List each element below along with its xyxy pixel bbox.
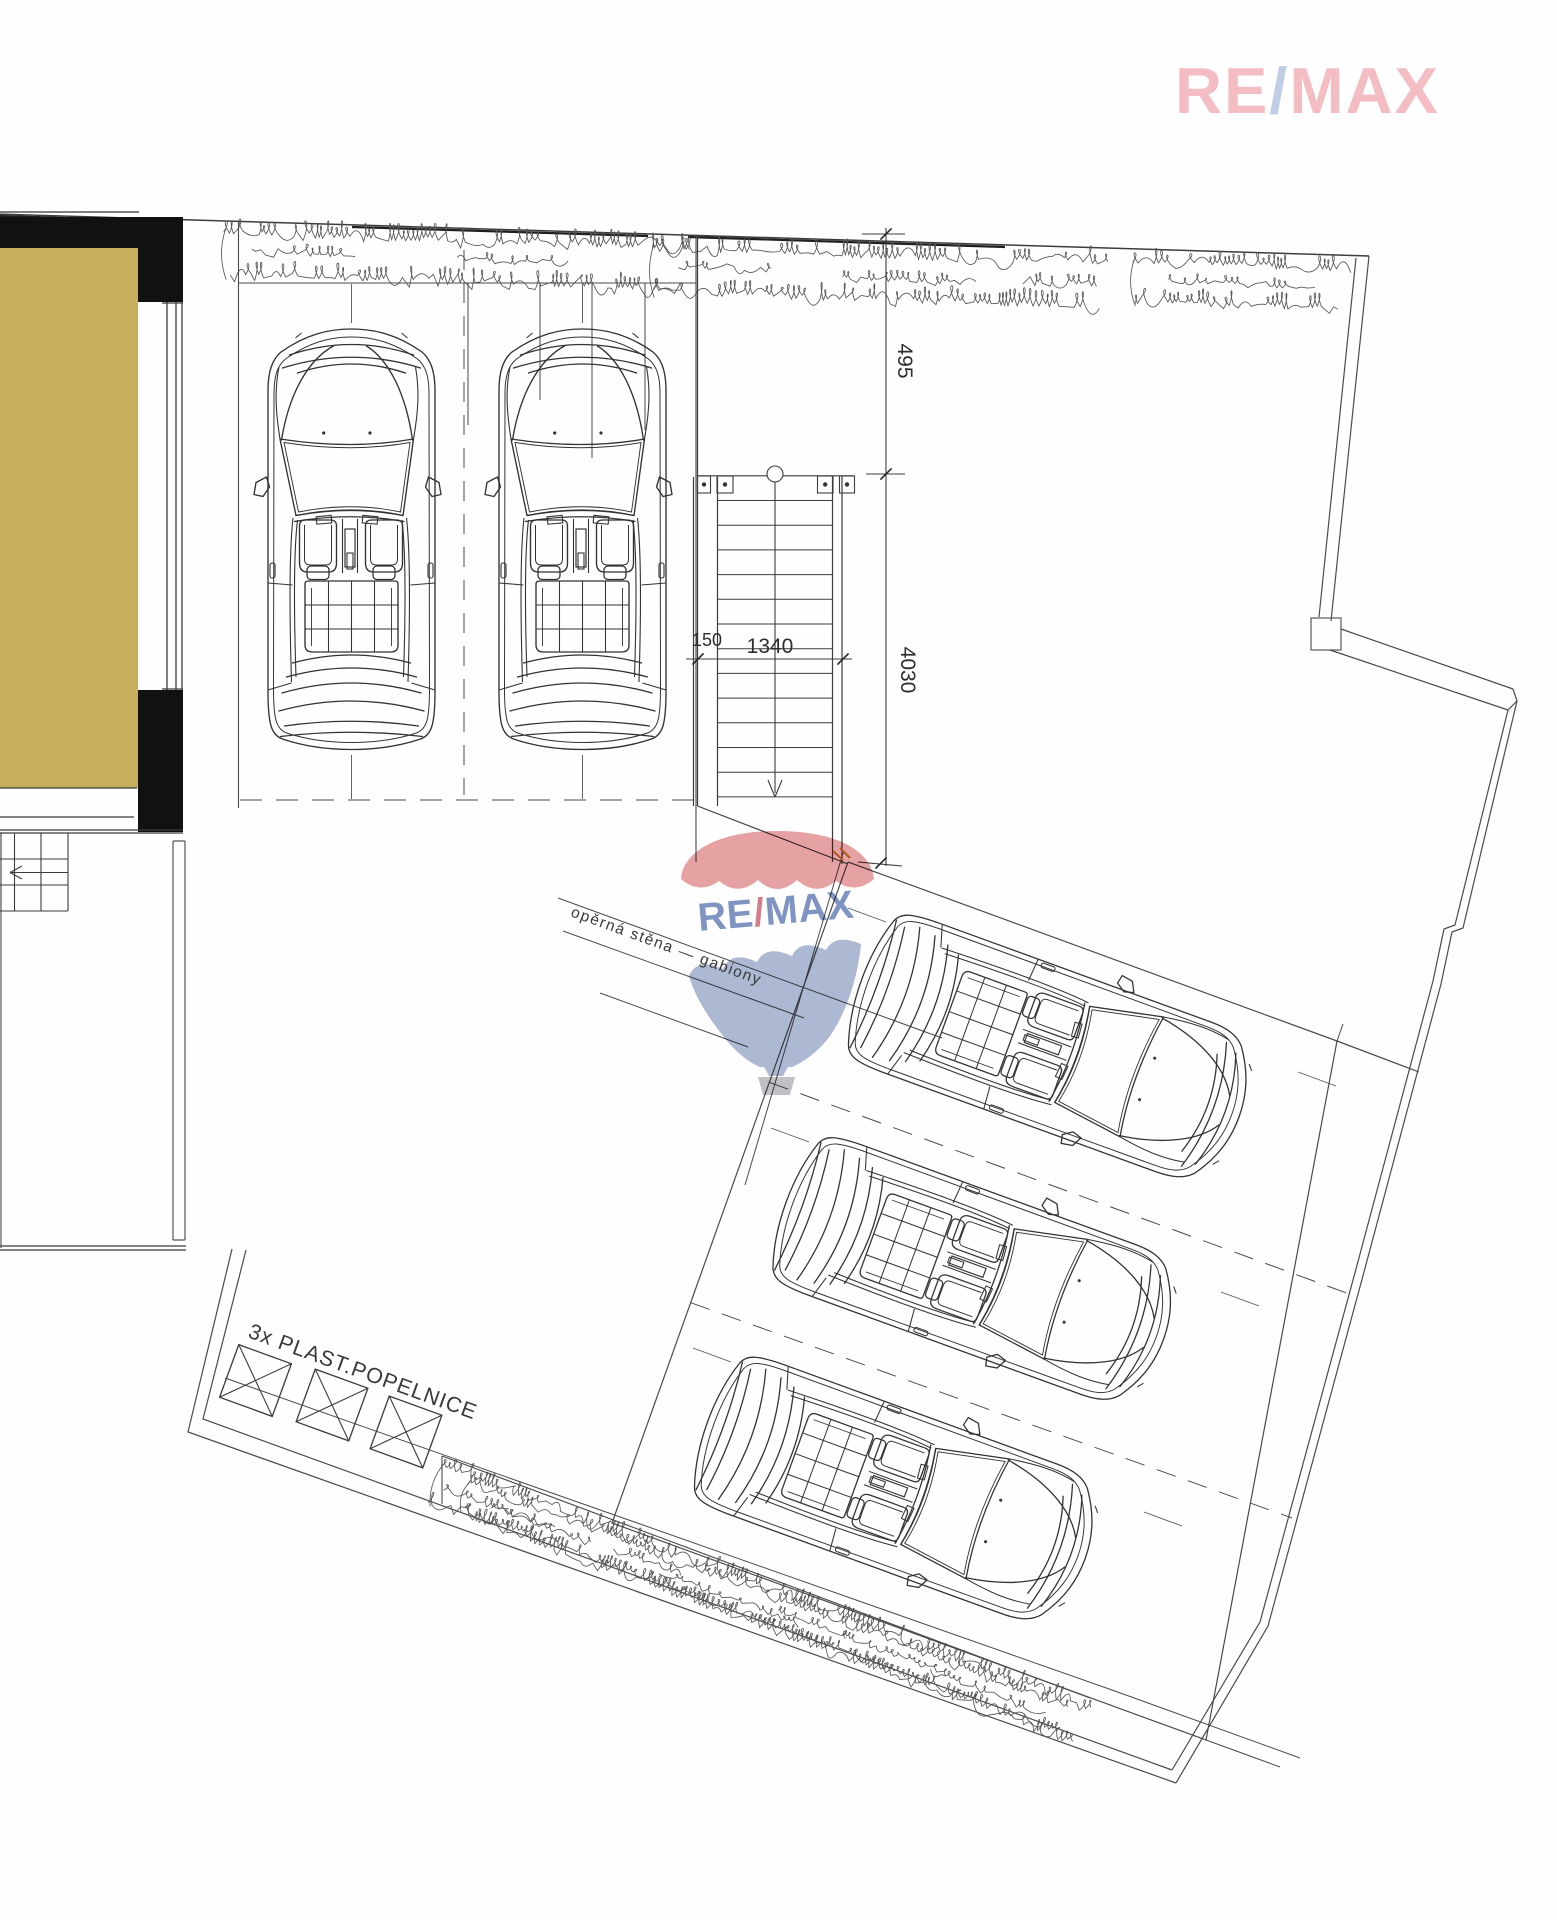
svg-text:150: 150 [692, 630, 722, 650]
svg-text:4030: 4030 [896, 647, 919, 694]
svg-text:495: 495 [893, 343, 916, 378]
svg-text:RE/MAX: RE/MAX [1175, 54, 1440, 127]
svg-text:1340: 1340 [747, 635, 794, 658]
